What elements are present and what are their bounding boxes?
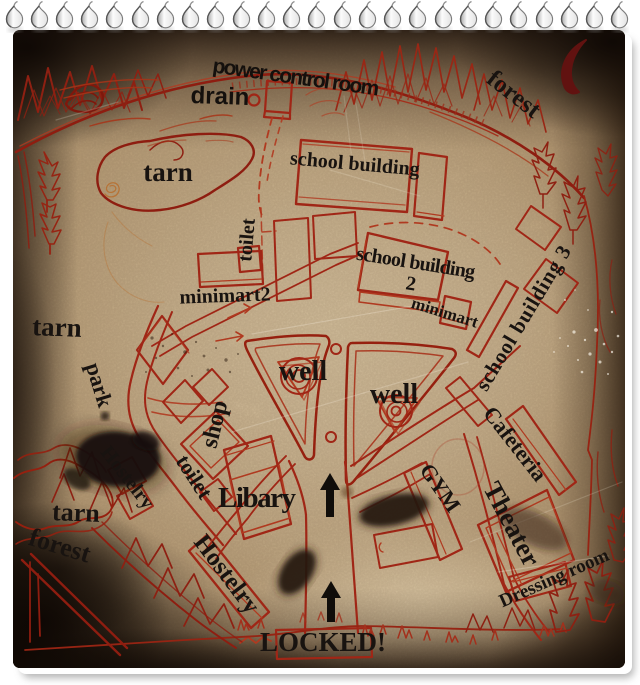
svg-text:tarn: tarn — [143, 157, 193, 187]
svg-text:well: well — [370, 379, 418, 410]
svg-text:Libary: Libary — [218, 482, 297, 514]
svg-text:LOCKED!: LOCKED! — [260, 627, 386, 657]
svg-text:tarn: tarn — [32, 311, 83, 343]
svg-text:toilet: toilet — [234, 217, 260, 262]
svg-text:well: well — [279, 356, 327, 387]
svg-text:minimart2: minimart2 — [179, 283, 271, 308]
svg-text:tarn: tarn — [52, 497, 101, 528]
svg-text:drain: drain — [190, 82, 250, 111]
